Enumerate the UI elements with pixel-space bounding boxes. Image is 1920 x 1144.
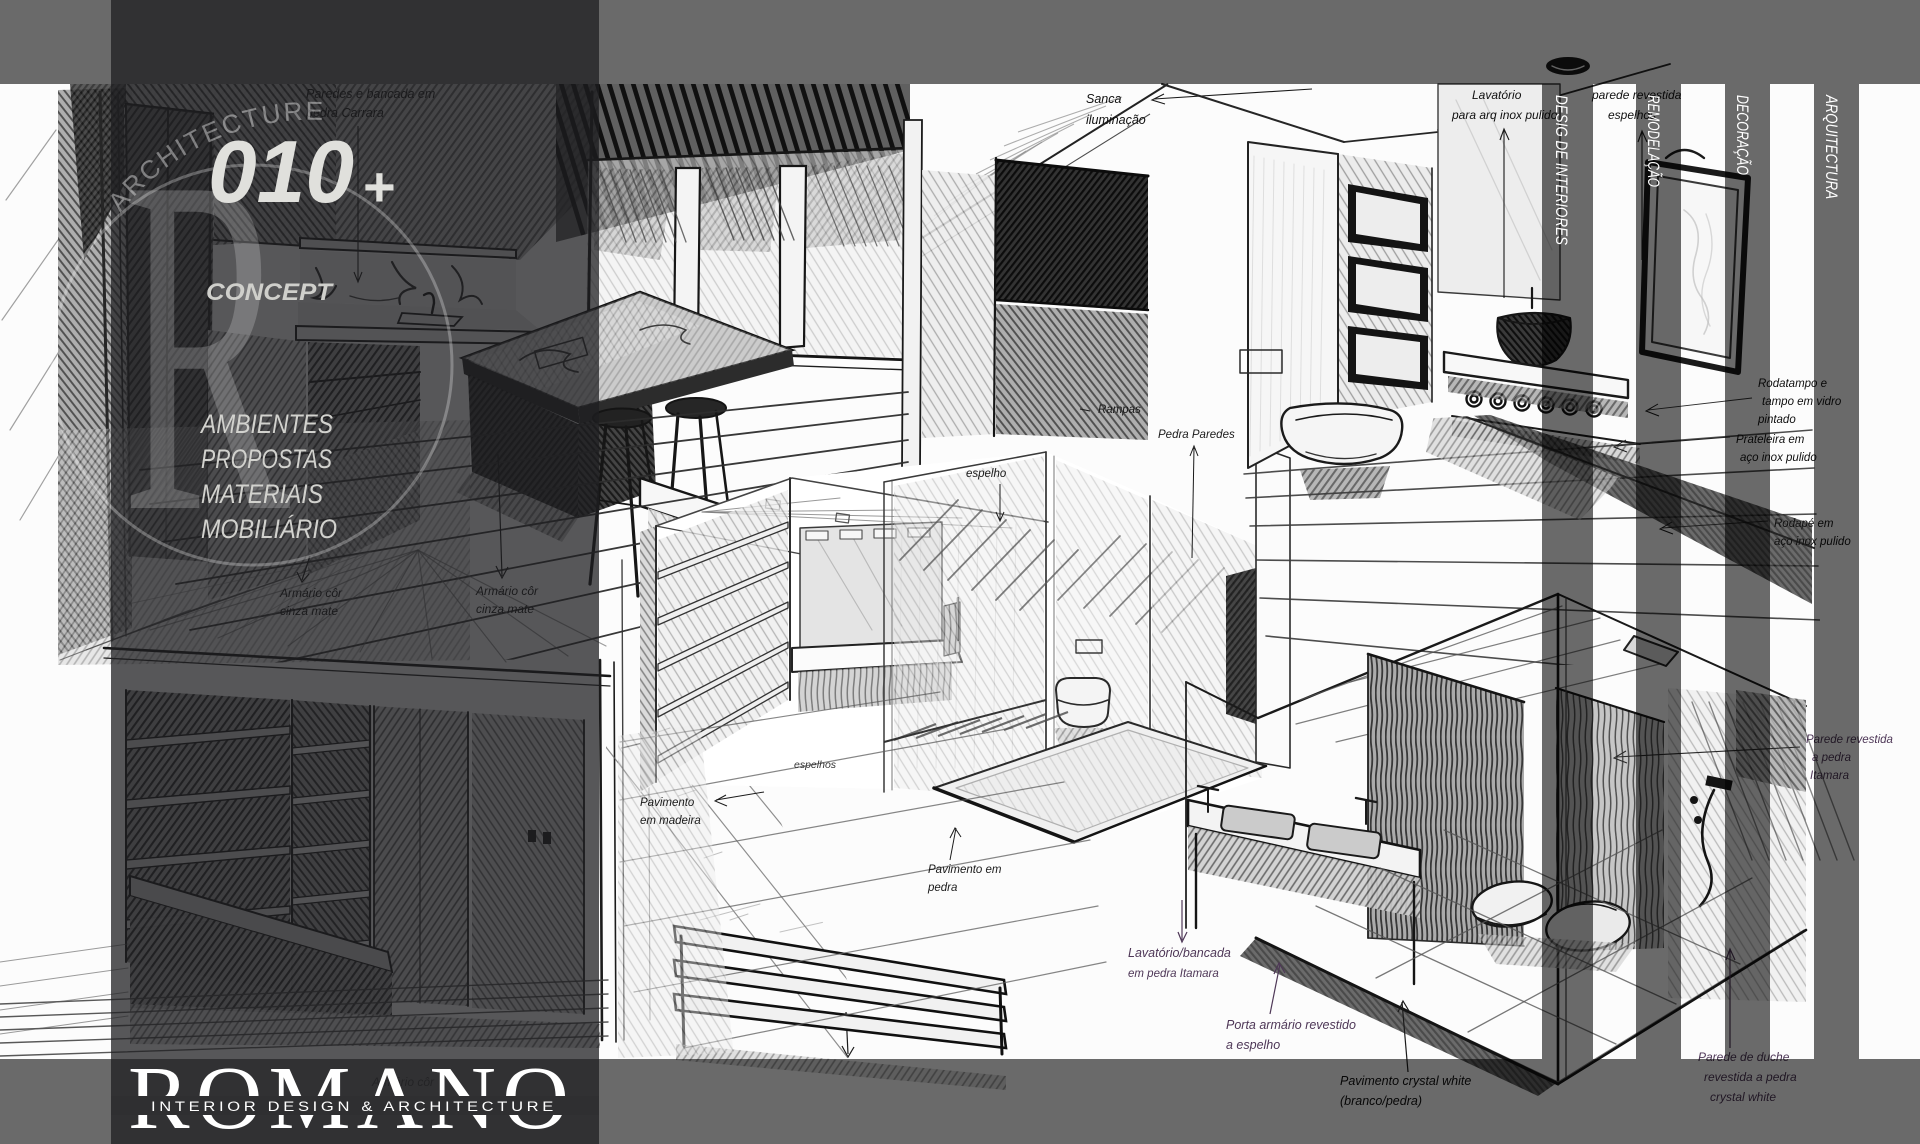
svg-text:010: 010	[208, 122, 354, 221]
svg-text:Pedra Paredes: Pedra Paredes	[1158, 429, 1235, 441]
svg-text:+: +	[362, 155, 395, 218]
svg-text:espelhos: espelhos	[794, 759, 837, 771]
svg-text:CONCEPT: CONCEPT	[206, 279, 335, 306]
svg-text:ARQUITECTURA: ARQUITECTURA	[1822, 94, 1841, 199]
svg-text:a espelho: a espelho	[1226, 1038, 1280, 1052]
svg-text:pedra: pedra	[927, 882, 957, 894]
svg-text:em madeira: em madeira	[640, 815, 701, 827]
svg-text:PROPOSTAS: PROPOSTAS	[201, 444, 332, 474]
svg-text:Pavimento em: Pavimento em	[928, 864, 1002, 876]
svg-text:MATERIAIS: MATERIAIS	[201, 479, 323, 509]
svg-text:Lavatório/bancada: Lavatório/bancada	[1128, 946, 1231, 960]
svg-text:para arq inox pulido: para arq inox pulido	[1451, 108, 1558, 122]
svg-text:AMBIENTES: AMBIENTES	[199, 409, 333, 439]
svg-text:espelho: espelho	[966, 468, 1007, 480]
svg-text:Lavatório: Lavatório	[1472, 88, 1522, 102]
svg-text:Sanca: Sanca	[1086, 92, 1121, 106]
svg-text:Rampas: Rampas	[1098, 404, 1141, 416]
svg-text:iluminação: iluminação	[1086, 113, 1146, 127]
svg-text:em pedra Itamara: em pedra Itamara	[1128, 968, 1219, 980]
svg-text:MOBILIÁRIO: MOBILIÁRIO	[201, 514, 337, 544]
svg-text:DECORAÇÃO: DECORAÇÃO	[1733, 95, 1752, 175]
svg-text:Pavimento: Pavimento	[640, 797, 695, 809]
svg-text:Porta armário revestido: Porta armário revestido	[1226, 1018, 1356, 1032]
svg-text:INTERIOR DESIGN & ARCHITECTURE: INTERIOR DESIGN & ARCHITECTURE	[151, 1099, 557, 1114]
svg-text:REMODELAÇÃO: REMODELAÇÃO	[1644, 95, 1663, 187]
svg-text:DESIG DE INTERIORES: DESIG DE INTERIORES	[1552, 95, 1571, 246]
